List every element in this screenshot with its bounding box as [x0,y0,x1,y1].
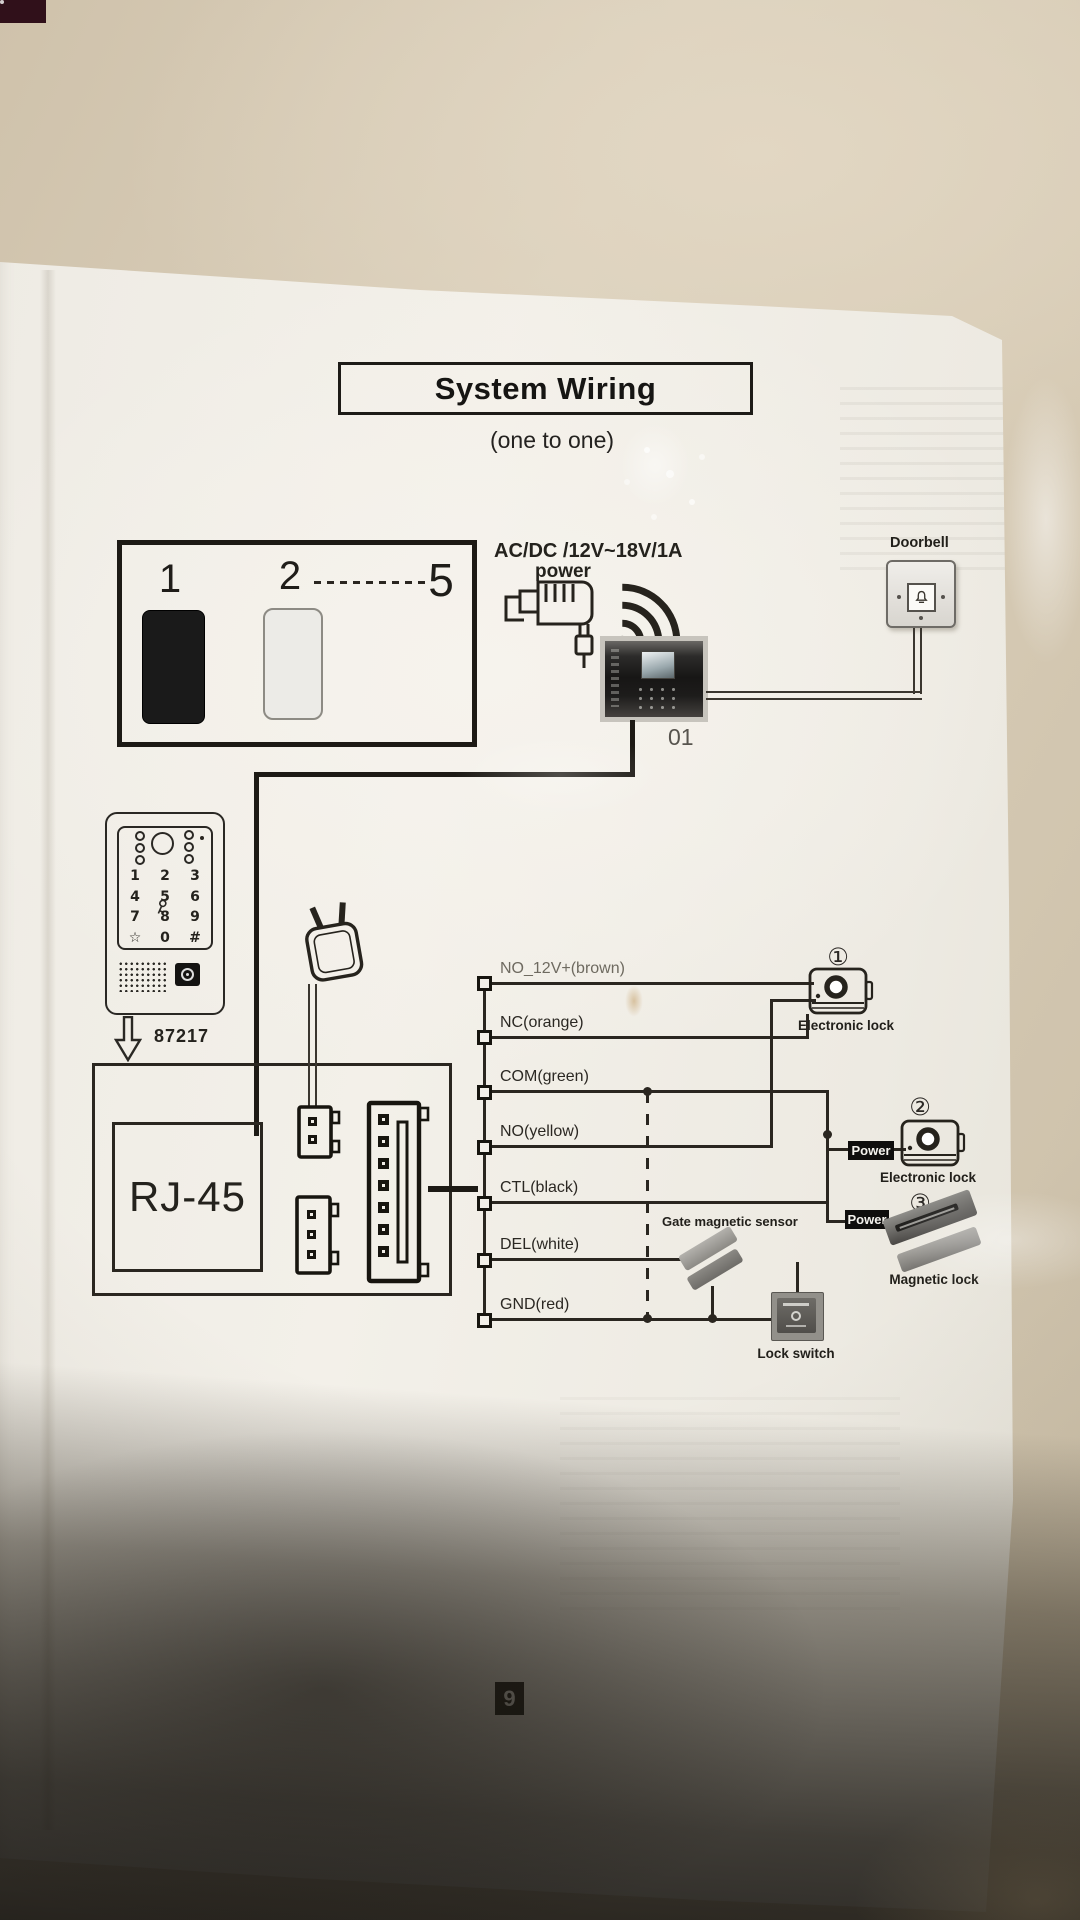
key-3: 3 [180,866,210,887]
led-dot [135,843,145,853]
door-station-keypad-dots [635,685,683,711]
photo-corner-artifact [0,0,46,23]
led-dot [184,842,194,852]
doorbell-screw [941,595,945,599]
connector-small-1 [296,1104,342,1160]
wire-label-del: DEL(white) [500,1236,579,1254]
wire-com [492,1090,828,1093]
terminal-del [477,1253,492,1268]
no-wire-riser [770,999,773,1148]
manual-paper: System Wiring (one to one) 1 2 5 AC/DC /… [0,0,1080,1920]
photo-of-manual-page: System Wiring (one to one) 1 2 5 AC/DC /… [0,0,1080,1920]
bleed-through-ghost [560,1390,900,1610]
terminal-no12v [477,976,492,991]
doorbell-plate [886,560,956,628]
trunk-wire-from-door-station [630,720,635,775]
plug-cord [308,984,317,1108]
sensor-dashed-link [646,1092,649,1320]
wire-label-gnd: GND(red) [500,1296,569,1314]
door-station-speaker [611,649,619,707]
maglock-to-switch-drop [796,1262,799,1295]
led-dot [184,830,194,840]
mic-dot [200,836,204,840]
monitor-number-5: 5 [420,555,462,605]
terminal-gnd [477,1313,492,1328]
key-6: 6 [180,887,210,908]
doorbell-wire-vertical [913,628,922,694]
page-title-box: System Wiring [338,362,753,415]
lock-switch-label: Lock switch [756,1346,836,1361]
door-station-screen [641,651,675,679]
connector-small-2 [294,1194,342,1276]
phone-screen-portrait [149,627,198,705]
wire-nc [492,1036,808,1039]
wire-label-no12v: NO_12V+(brown) [500,960,625,978]
camera-icon [151,832,174,855]
wire-label-ctl: CTL(black) [500,1179,578,1197]
bell-icon [913,589,930,606]
junction-dot [823,1130,832,1139]
page-number-badge: 9 [495,1682,524,1715]
doorbell-button [907,583,936,612]
com-branch-vertical [826,1090,829,1223]
wire-no [492,1145,772,1148]
doorbell-wire-horizontal [706,691,922,700]
ellipsis-dash-line [314,581,426,584]
electronic-lock-icon-2 [900,1118,966,1170]
monitor-number-2: 2 [272,555,308,597]
key-2: 2 [150,866,180,887]
rj45-box: RJ-45 [112,1122,263,1272]
junction-dot [643,1314,652,1323]
wire-label-no: NO(yellow) [500,1123,579,1141]
terminal-ctl [477,1196,492,1211]
key-1: 1 [120,866,150,887]
arrow-down-icon [114,1016,142,1062]
door-station-id: 01 [668,724,712,751]
ctl-feed-wire [428,1186,478,1192]
monitor-number-1: 1 [152,558,188,600]
wire-no12v [492,982,814,985]
terminal-com [477,1085,492,1100]
speaker-grille [118,961,166,992]
key-9: 9 [180,907,210,928]
led-dot [135,831,145,841]
led-dot [184,854,194,864]
wire-label-com: COM(green) [500,1068,589,1086]
trunk-wire-horizontal [254,772,635,777]
junction-dot [708,1314,717,1323]
wire-ctl [492,1201,828,1204]
page-subtitle: (one to one) [462,425,642,455]
glitter-specks [0,0,4,4]
door-station-photo [600,636,708,722]
monitor-phone-dark [142,610,205,724]
led-dot [135,855,145,865]
terminal-no [477,1140,492,1155]
wire-gnd [492,1318,774,1321]
electronic-lock-icon-1 [808,966,874,1018]
terminal-nc [477,1030,492,1045]
key-4: 4 [120,887,150,908]
lock2-label: Electronic lock [878,1170,978,1185]
phone-screen-portrait [269,623,317,707]
paper-stain [625,985,643,1017]
power-spec-label: AC/DC /12V~18V/1A [494,540,754,562]
monitor-phone-white [263,608,323,720]
lock3-label: Magnetic lock [888,1272,980,1287]
key-star: ☆ [120,928,150,949]
rj45-label: RJ-45 [129,1173,246,1221]
key-hash: # [180,928,210,949]
wire-label-nc: NC(orange) [500,1014,584,1032]
paper-crease [40,270,56,1830]
doorbell-screw [897,595,901,599]
key-0: 0 [150,928,180,949]
keypad-model-number: 87217 [154,1026,209,1047]
brand-emblem [175,963,200,986]
doorbell-label: Doorbell [890,535,960,551]
power-plug-icon [281,891,384,999]
page-title: System Wiring [435,371,657,407]
junction-dot [643,1087,652,1096]
wire-del [492,1258,684,1261]
lock1-label: Electronic lock [796,1018,896,1033]
connector-large [366,1100,432,1284]
key-7: 7 [120,907,150,928]
lock-switch-device [771,1292,824,1341]
doorbell-screw [919,616,923,620]
lock2-power-badge: Power [848,1141,894,1160]
lock2-number: ② [906,1094,934,1120]
